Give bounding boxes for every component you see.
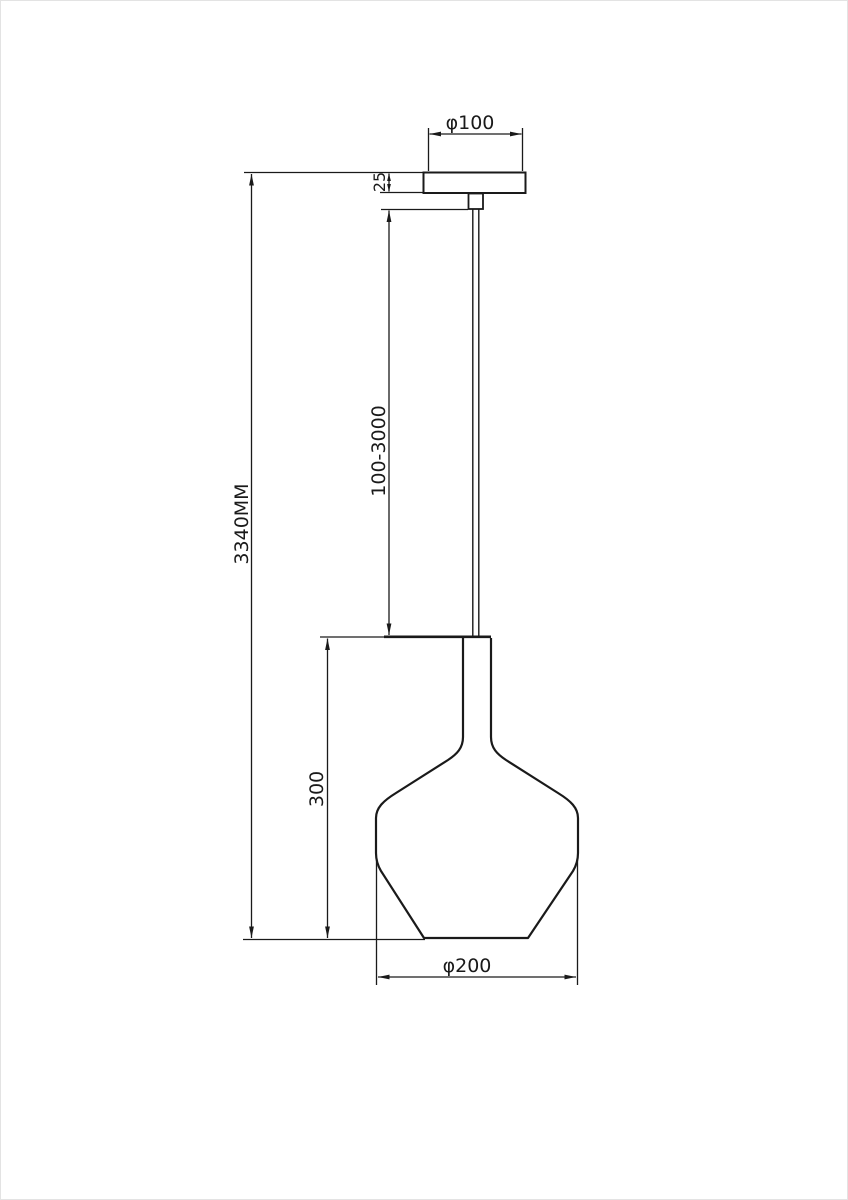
dimension-labels: φ100 25 100-3000 3340MM 300 φ200 <box>231 112 494 977</box>
cable-length-label: 100-3000 <box>368 405 390 496</box>
total-height-label: 3340MM <box>231 483 253 564</box>
ceiling-canopy <box>424 173 526 194</box>
lamp-geometry <box>376 173 578 939</box>
canopy-diameter-label: φ100 <box>446 112 495 134</box>
glass-shade-outline <box>376 638 578 938</box>
cable-connector <box>469 194 484 210</box>
extension-lines <box>243 128 578 985</box>
shade-height-label: 300 <box>306 771 328 807</box>
shade-diameter-label: φ200 <box>443 955 492 977</box>
pendant-lamp-drawing: φ100 25 100-3000 3340MM 300 φ200 <box>1 1 848 1200</box>
technical-drawing-canvas: φ100 25 100-3000 3340MM 300 φ200 <box>0 0 848 1200</box>
canopy-height-label: 25 <box>370 172 389 192</box>
dimension-lines <box>252 134 577 977</box>
